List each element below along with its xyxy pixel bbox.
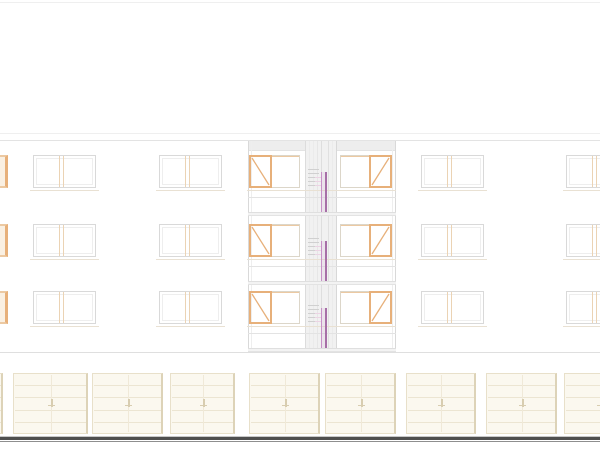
garage-door-slat-8-1 (566, 385, 600, 386)
garage-door-handle-bar-2 (125, 405, 132, 406)
floor-slab-band-f0 (248, 212, 396, 216)
ground-line-mid (0, 441, 600, 442)
window-mullion-f0-0-a (59, 156, 60, 187)
garage-door-0 (0, 373, 3, 434)
stair-tread-tick-f2-1 (308, 309, 319, 310)
garage-door-slat-8-2 (566, 397, 600, 398)
window-sill-f2-0 (30, 326, 99, 327)
bay-window-fixed-pane-f1-1 (340, 224, 370, 257)
casement-diagonal-f1-0 (251, 226, 270, 255)
window-sill-f1-3 (563, 259, 600, 260)
window-inner-frame-f0-1 (162, 158, 219, 185)
parapet-line-upper (0, 133, 600, 134)
stair-tread-tick-f2-0 (308, 305, 319, 306)
window-mullion-f2-0-b (63, 292, 64, 323)
window-mullion-f0-3-b (596, 156, 597, 187)
window-sill-f2-3 (563, 326, 600, 327)
stair-mullion-7 (336, 141, 337, 352)
window-mullion-f1-0-a (59, 225, 60, 256)
garage-door-handle-bar-7 (519, 405, 526, 406)
window-sill-f2-2 (418, 326, 487, 327)
bay-window-sill-f1-1 (338, 259, 395, 260)
stair-mullion-6 (332, 141, 333, 352)
elevation-drawing-canvas (0, 0, 600, 450)
garage-door-handle-bar-1 (48, 405, 55, 406)
window-inner-frame-f0-0 (36, 158, 93, 185)
window-inner-frame-f2-0 (36, 294, 93, 321)
window-sill-f0-1 (156, 190, 225, 191)
window-sill-f1-2 (418, 259, 487, 260)
stair-mullion-5 (328, 141, 329, 352)
ground-line-dark (0, 437, 600, 440)
window-mullion-f2-2-a (447, 292, 448, 323)
bay-window-fixed-pane-f2-0 (271, 291, 300, 324)
window-sill-f2-1 (156, 326, 225, 327)
window-inner-frame-f0-2 (424, 158, 481, 185)
window-mullion-f0-2-b (451, 156, 452, 187)
window-inner-frame-f1-2 (424, 227, 481, 254)
casement-diagonal-f2-1 (371, 293, 390, 322)
stair-tread-tick-f1-1 (308, 242, 319, 243)
window-mullion-f0-2-a (447, 156, 448, 187)
garage-door-slat-0-2 (0, 397, 1, 398)
bay-window-sill-f2-1 (338, 326, 395, 327)
garage-door-slat-8-4 (566, 422, 600, 423)
window-mullion-f1-2-a (447, 225, 448, 256)
stair-tread-tick-f0-0 (308, 169, 319, 170)
garage-door-slat-0-3 (0, 410, 1, 411)
window-left-partial-f1 (0, 224, 8, 257)
window-sill-f1-0 (30, 259, 99, 260)
image-top-border (0, 2, 600, 3)
garage-door-slat-0-4 (0, 422, 1, 423)
window-mullion-f1-2-b (451, 225, 452, 256)
window-mullion-f0-0-b (63, 156, 64, 187)
stair-mullion-0 (305, 141, 306, 352)
window-mullion-f0-3-a (592, 156, 593, 187)
bay-window-fixed-pane-f0-0 (271, 155, 300, 188)
bay-window-sill-f0-0 (247, 190, 303, 191)
window-mullion-f1-1-a (185, 225, 186, 256)
casement-diagonal-f0-0 (251, 157, 270, 186)
window-mullion-f1-0-b (63, 225, 64, 256)
casement-diagonal-f0-1 (371, 157, 390, 186)
window-inner-frame-f1-0 (36, 227, 93, 254)
window-sill-f1-1 (156, 259, 225, 260)
window-mullion-f2-3-b (596, 292, 597, 323)
bay-window-fixed-pane-f0-1 (340, 155, 370, 188)
stair-door-f0 (321, 172, 327, 212)
bay-window-sill-f0-1 (338, 190, 395, 191)
casement-diagonal-f2-0 (251, 293, 270, 322)
stair-door-f1 (321, 241, 327, 281)
garage-door-handle-bar-4 (282, 405, 289, 406)
window-mullion-f2-3-a (592, 292, 593, 323)
stair-tread-tick-f1-0 (308, 238, 319, 239)
bay-edge-line-right-inner (392, 141, 393, 352)
bay-window-sill-f1-0 (247, 259, 303, 260)
window-inner-frame-f1-1 (162, 227, 219, 254)
garage-door-handle-bar-6 (438, 405, 445, 406)
stair-tread-tick-f0-1 (308, 173, 319, 174)
window-inner-frame-f2-1 (162, 294, 219, 321)
bay-window-sill-f2-0 (247, 326, 303, 327)
window-left-partial-f2 (0, 291, 8, 324)
bay-edge-line-right (395, 141, 396, 352)
facade-bottom-line (0, 352, 600, 353)
window-mullion-f0-1-a (185, 156, 186, 187)
floor-slab-band-f2 (248, 348, 396, 352)
window-mullion-f2-1-a (185, 292, 186, 323)
window-mullion-f1-1-b (189, 225, 190, 256)
window-sill-f0-0 (30, 190, 99, 191)
garage-door-handle-bar-3 (200, 405, 207, 406)
window-mullion-f1-3-b (596, 225, 597, 256)
stair-door-f2 (321, 308, 327, 348)
garage-door-slat-0-1 (0, 385, 1, 386)
window-sill-f0-3 (563, 190, 600, 191)
window-sill-f0-2 (418, 190, 487, 191)
bay-window-fixed-pane-f2-1 (340, 291, 370, 324)
window-mullion-f2-2-b (451, 292, 452, 323)
bay-window-fixed-pane-f1-0 (271, 224, 300, 257)
garage-door-8 (564, 373, 600, 434)
window-inner-frame-f2-2 (424, 294, 481, 321)
garage-door-handle-bar-5 (358, 405, 365, 406)
window-left-partial-f0 (0, 155, 8, 188)
casement-diagonal-f1-1 (371, 226, 390, 255)
window-mullion-f2-1-b (189, 292, 190, 323)
window-mullion-f0-1-b (189, 156, 190, 187)
window-mullion-f2-0-a (59, 292, 60, 323)
window-mullion-f1-3-a (592, 225, 593, 256)
garage-door-slat-8-3 (566, 410, 600, 411)
floor-slab-band-f1 (248, 281, 396, 285)
